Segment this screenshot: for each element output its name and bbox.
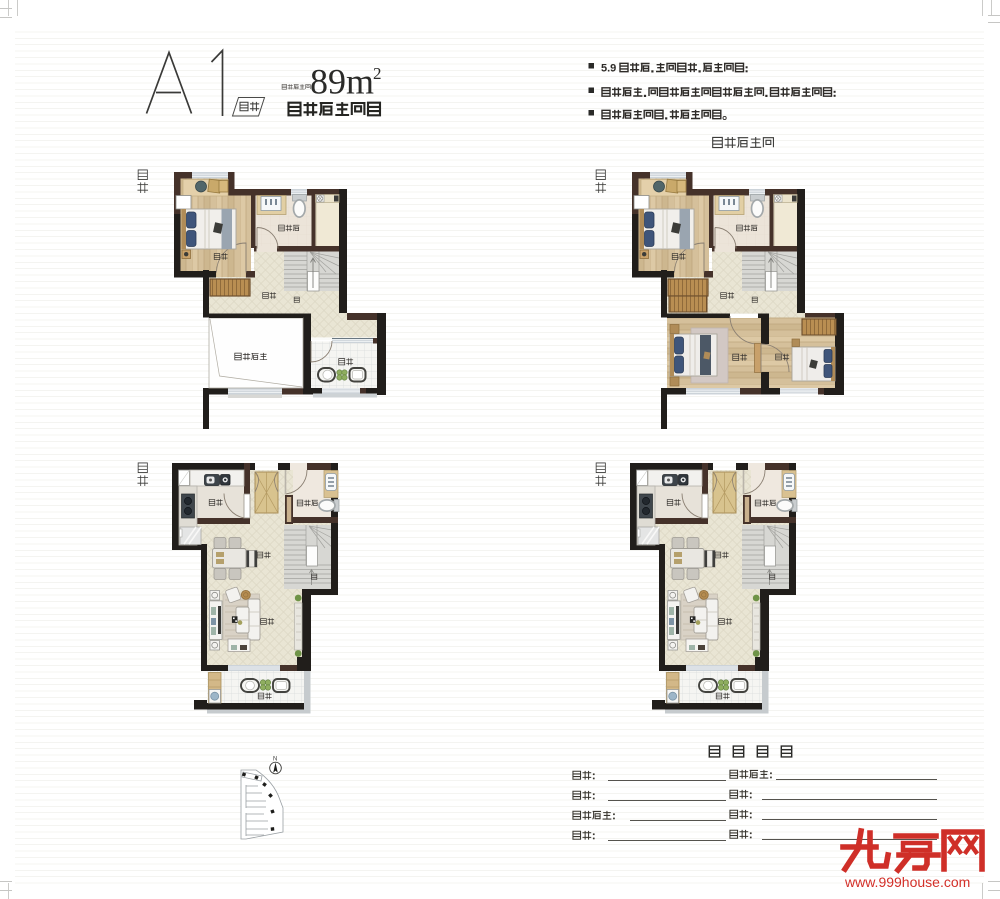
svg-text:2: 2 bbox=[373, 64, 382, 83]
svg-text:5.9: 5.9 bbox=[601, 63, 616, 75]
svg-text:89m: 89m bbox=[310, 62, 374, 102]
svg-text:www.999house.com: www.999house.com bbox=[844, 874, 970, 890]
svg-text:N: N bbox=[273, 757, 277, 763]
